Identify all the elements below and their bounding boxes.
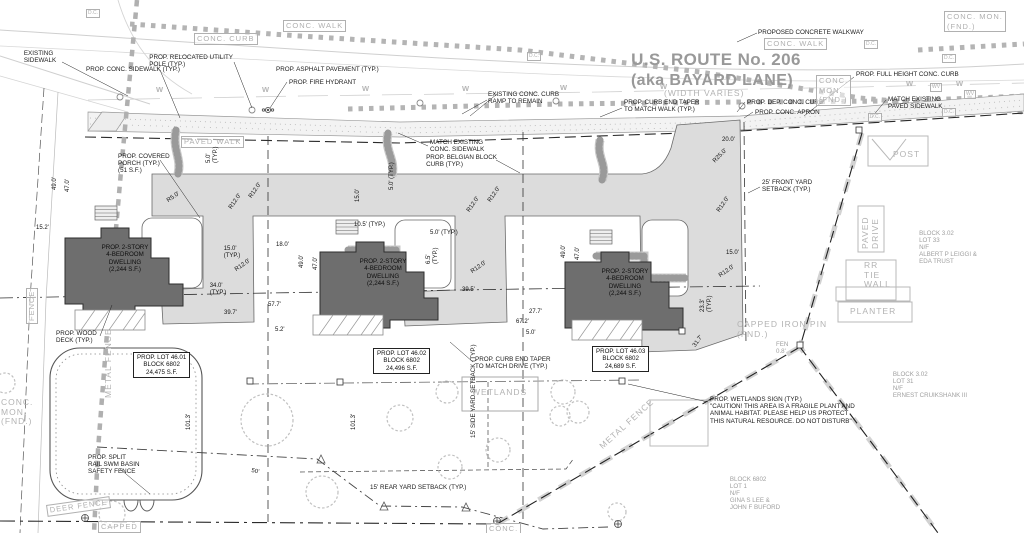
metal-fence-tag-vertical: METAL FENCE	[104, 328, 114, 398]
rear-setback-label: 15' REAR YARD SETBACK (TYP.)	[370, 484, 466, 491]
site-plan-canvas: U.S. ROUTE No. 206 (aka BAYARD LANE) PRO…	[0, 0, 1024, 533]
depressed-curb-tag: D.C.	[868, 113, 882, 122]
dimension-label: 49.0'	[299, 255, 306, 268]
dimension-label: 49.0'	[52, 177, 59, 190]
depressed-curb-tag: D.C.	[864, 40, 878, 49]
dimension-label: 101.3'	[186, 414, 193, 430]
dimension-label: 15.2'	[36, 225, 49, 232]
house-label-1: PROP. 2-STORY 4-BEDROOM DWELLING (2,244 …	[102, 244, 149, 274]
dimension-label: 5.0' (TYP.)	[389, 162, 396, 190]
house-label-3: PROP. 2-STORY 4-BEDROOM DWELLING (2,244 …	[602, 268, 649, 298]
prop-conc-apron-label: PROP. CONC. APRON	[755, 109, 820, 116]
depressed-curb-tag: D.C.	[86, 9, 100, 18]
water-valve-tag: WV	[930, 83, 942, 92]
dimension-label: 23.3' (TYP.)	[700, 295, 713, 312]
existing-sidewalk-label: EXISTING SIDEWALK	[24, 50, 56, 64]
rr-tie-wall-tag: RR TIE WALL	[864, 261, 891, 290]
conc-mon-left-tag: CONC. MON. (FND.)	[1, 398, 33, 427]
fence-tag: FENCE	[26, 288, 38, 324]
dimension-label: 39.7'	[224, 310, 237, 317]
dimension-label: 6.5' (TYP.)	[426, 247, 439, 264]
dimension-label: 34.0' (TYP.)	[210, 283, 227, 296]
water-line-marker: W	[156, 86, 163, 93]
dimension-label: 47.0'	[65, 179, 72, 192]
dimension-label: 47.0'	[575, 247, 582, 260]
dimension-label: 67.2'	[516, 319, 529, 326]
wetlands-tag: WETLANDS	[472, 388, 527, 398]
lot-4602-box: PROP. LOT 46.02 BLOCK 6802 24,496 S.F.	[373, 348, 430, 374]
conc-curb-tag: CONC. CURB	[194, 33, 258, 45]
dimension-label: 57.7'	[268, 302, 281, 309]
front-yard-setback-label: 25' FRONT YARD SETBACK (TYP.)	[762, 179, 812, 193]
wetlands-sign-label: PROP. WETLANDS SIGN (TYP.) "CAUTION! THI…	[710, 396, 855, 425]
capped-iron-pin-label: CAPPED IRON PIN (FND.)	[737, 320, 827, 339]
dimension-label: 18.0'	[276, 242, 289, 249]
dimension-label: 50'	[251, 468, 260, 476]
conc-walk-tag-2: CONC. WALK	[764, 38, 827, 50]
neighbor-lot-1: BLOCK 6802 LOT 1 N/F GINA S LEE & JOHN F…	[730, 476, 780, 511]
water-line-marker: W	[906, 80, 913, 87]
post-tag: POST	[893, 150, 920, 160]
wood-deck-label: PROP. WOOD DECK (TYP.)	[56, 330, 97, 344]
lot-4603-box: PROP. LOT 46.03 BLOCK 6802 24,689 S.F.	[592, 346, 649, 372]
dimension-label: 15.0'	[726, 250, 739, 257]
dimension-label: 5.0' (TYP.)	[430, 230, 458, 237]
prop-dep-conc-curb-label: PROP. DEP. CONC. CURB	[747, 99, 823, 106]
curb-end-taper-drive-label: PROP. CURB END TAPER TO MATCH DRIVE (TYP…	[475, 356, 551, 370]
prop-fire-hydrant-label: PROP. FIRE HYDRANT	[289, 79, 356, 86]
prop-asphalt-pavement-label: PROP. ASPHALT PAVEMENT (TYP.)	[276, 66, 379, 73]
setback-lines	[300, 382, 574, 472]
depressed-curb-tag: D.C.	[942, 54, 956, 63]
dimension-label: 47.0'	[313, 257, 320, 270]
conc-mon-fnd-tag-ne: CONC. MON. (FND.)	[944, 11, 1006, 32]
existing-conc-curb-ramp-label: EXISTING CONC. CURB RAMP TO REMAIN	[488, 91, 559, 105]
dimension-label: 27.7'	[529, 309, 542, 316]
water-valve-tag: WV	[964, 90, 976, 99]
covered-porch-label: PROP. COVERED PORCH (TYP.) (51 S.F.)	[118, 153, 170, 175]
dimension-label: 5.0'	[526, 330, 536, 337]
dimension-label: 5.2'	[275, 327, 285, 334]
belgian-block-curb-label: PROP. BELGIAN BLOCK CURB (TYP.)	[426, 154, 497, 168]
capped-tag: CAPPED	[98, 521, 141, 533]
match-existing-paved-sidewalk-label: MATCH EXISTING PAVED SIDEWALK	[888, 96, 942, 110]
dimension-label: 49.0'	[561, 245, 568, 258]
planter-tag: PLANTER	[850, 307, 896, 317]
south-boundary-line	[0, 521, 497, 524]
depressed-curb-tag: D.C.	[527, 52, 541, 61]
width-varies-label: (WIDTH VARIES)	[664, 89, 744, 99]
dimension-label: 101.3'	[351, 414, 358, 430]
water-line-marker: W	[560, 84, 567, 91]
paved-drive-tag: PAVED DRIVE	[861, 216, 880, 249]
proposed-concrete-walkway-label: PROPOSED CONCRETE WALKWAY	[758, 29, 864, 36]
fire-hydrant-icon	[262, 107, 273, 112]
dimension-label: 15.0'	[355, 189, 362, 202]
dimension-label: 20.0'	[722, 137, 735, 144]
lot-4601-box: PROP. LOT 46.01 BLOCK 6802 24,475 S.F.	[133, 352, 190, 378]
house-label-2: PROP. 2-STORY 4-BEDROOM DWELLING (2,244 …	[360, 258, 407, 288]
water-line-marker: W	[660, 83, 667, 90]
fen-offset-note: FEN 0.8'	[776, 341, 788, 355]
wetlands-boundary	[97, 380, 640, 529]
conc-mon-fnd-tag-mid: CONC. MON. (FND.)	[816, 75, 851, 106]
prop-full-height-curb-label: PROP. FULL HEIGHT CONC. CURB	[856, 71, 959, 78]
neighbor-lot-33: BLOCK 3.02 LOT 33 N/F ALBERT P LEIGGI & …	[919, 230, 977, 265]
dimension-label: 5.0' (TYP.)	[206, 146, 219, 163]
prop-relocated-utility-pole-label: PROP. RELOCATED UTILITY POLE (TYP.)	[149, 54, 233, 68]
water-line-marker: W	[956, 80, 963, 87]
neighbor-lot-31: BLOCK 3.02 LOT 31 N/F ERNEST CRUIKSHANK …	[893, 371, 967, 399]
swm-fence-label: PROP. SPLIT RAIL SWM BASIN SAFETY FENCE	[88, 454, 140, 476]
depressed-curb-tag: D.C.	[942, 108, 956, 117]
water-line-marker: W	[462, 85, 469, 92]
route-206-title: U.S. ROUTE No. 206	[631, 50, 801, 70]
conc-walk-tag-1: CONC. WALK	[283, 20, 346, 32]
conc-corner-tag: CONC.	[486, 523, 521, 533]
match-existing-conc-sidewalk-label: MATCH EXISTING CONC. SIDEWALK	[430, 139, 484, 153]
dimension-label: 15.0' (TYP.)	[224, 246, 241, 259]
water-line-marker: W	[262, 86, 269, 93]
dimension-label: 39.5'	[462, 287, 475, 294]
water-line-marker: W	[362, 85, 369, 92]
dimension-label: 10.5' (TYP.)	[354, 222, 385, 229]
curb-end-taper-walk-label: PROP. CURB END TAPER TO MATCH WALK (TYP.…	[624, 99, 700, 113]
